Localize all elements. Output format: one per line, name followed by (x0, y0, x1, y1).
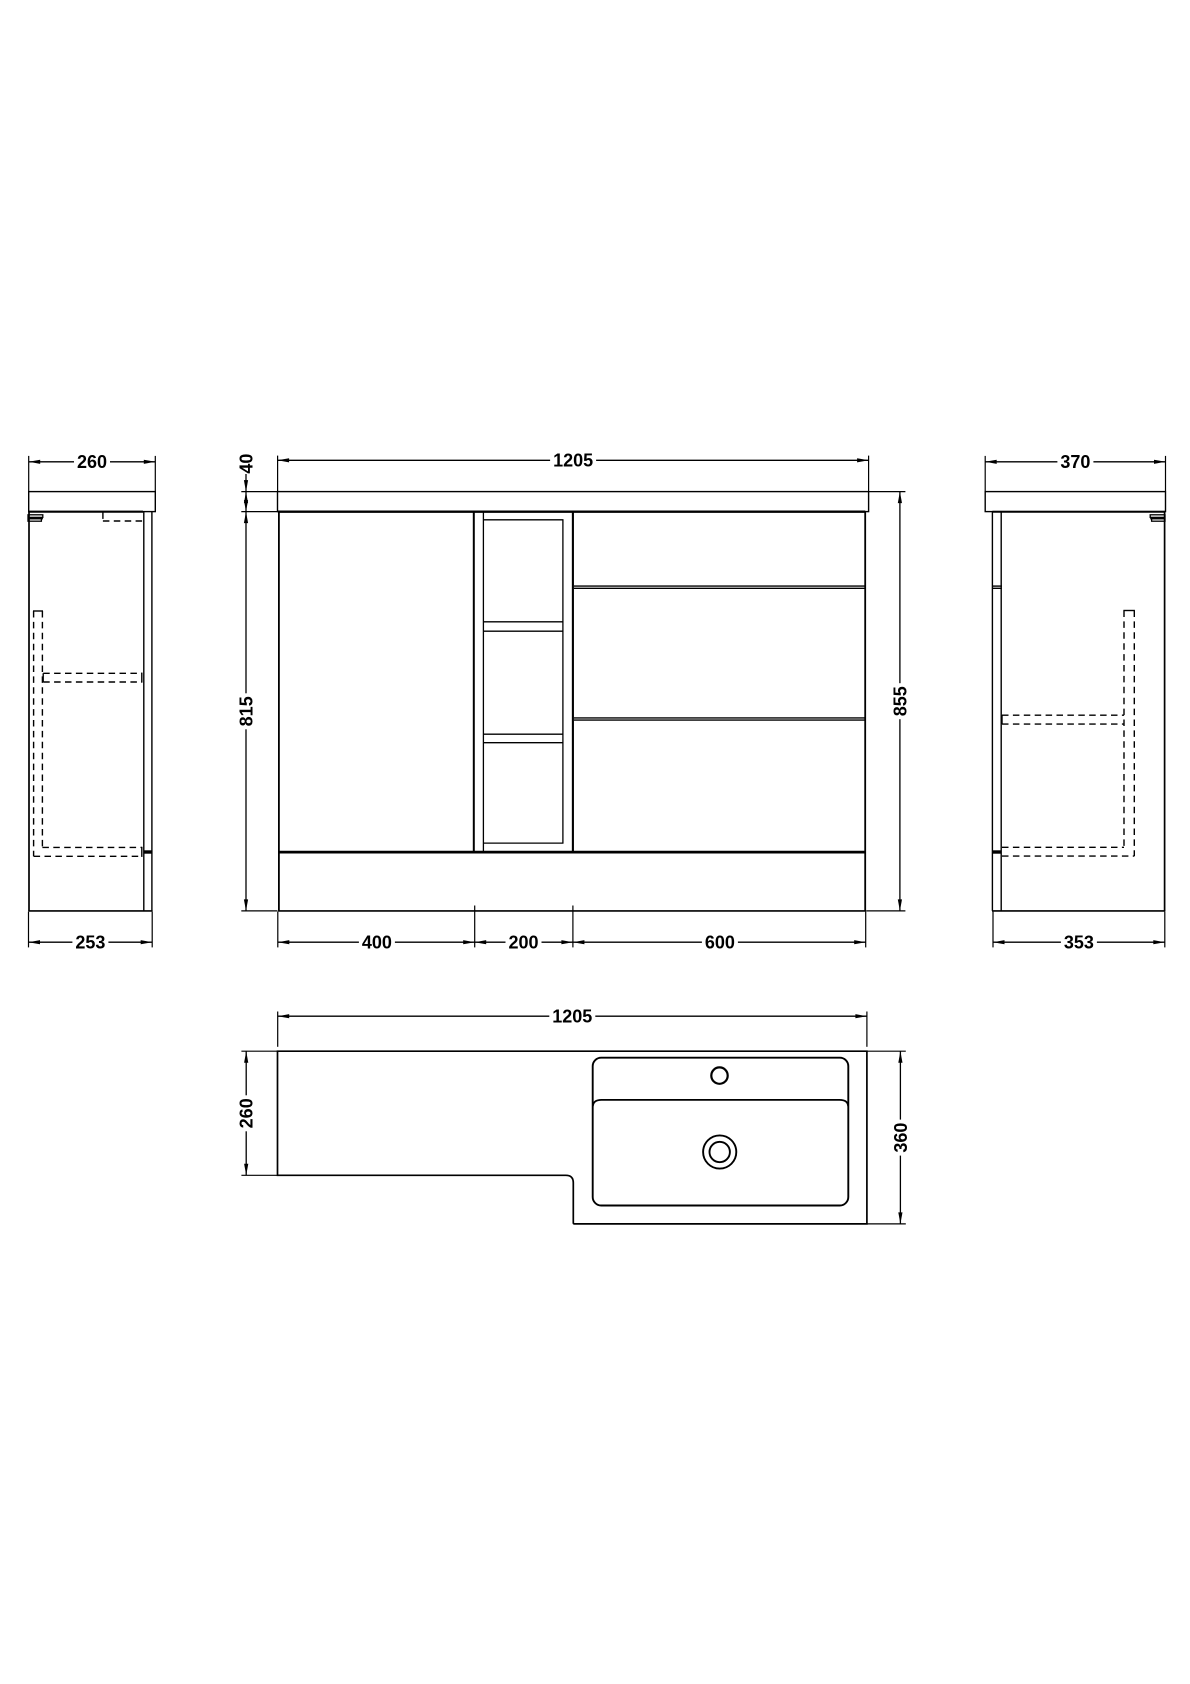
svg-text:40: 40 (236, 454, 256, 474)
svg-text:600: 600 (705, 933, 735, 953)
svg-text:1205: 1205 (553, 451, 593, 471)
svg-text:370: 370 (1060, 452, 1090, 472)
svg-text:815: 815 (236, 696, 256, 726)
svg-text:1205: 1205 (552, 1007, 592, 1027)
svg-text:400: 400 (362, 933, 392, 953)
svg-text:855: 855 (890, 686, 910, 716)
svg-text:200: 200 (508, 933, 538, 953)
svg-text:260: 260 (237, 1098, 257, 1128)
svg-text:360: 360 (891, 1123, 911, 1153)
svg-text:260: 260 (77, 452, 107, 472)
svg-text:253: 253 (75, 933, 105, 953)
svg-text:353: 353 (1064, 933, 1094, 953)
